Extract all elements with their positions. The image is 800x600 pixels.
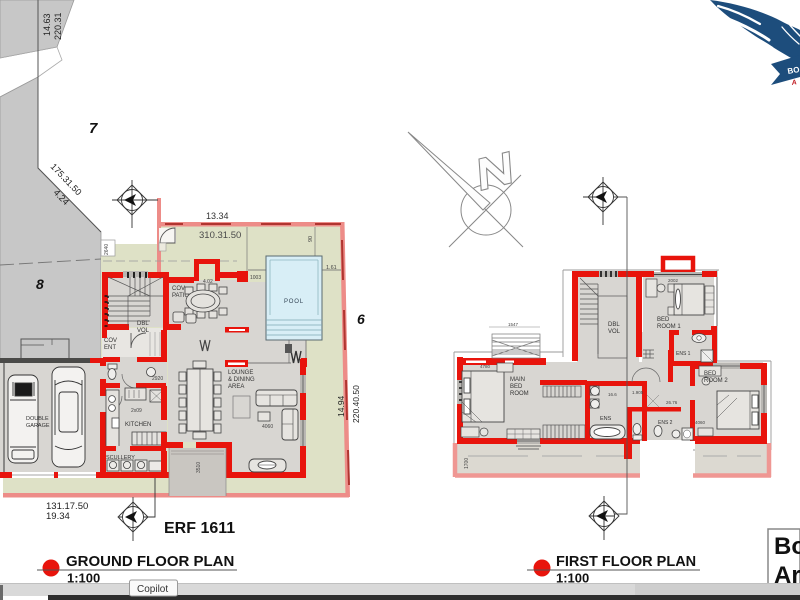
svg-text:16.6: 16.6: [608, 392, 617, 397]
svg-text:220.40.50: 220.40.50: [351, 385, 361, 423]
svg-text:1.61: 1.61: [326, 265, 337, 271]
svg-text:1700: 1700: [464, 458, 470, 469]
svg-text:GARAGE: GARAGE: [26, 423, 50, 429]
svg-text:ENS 1: ENS 1: [676, 351, 691, 357]
svg-text:26.76: 26.76: [666, 400, 678, 405]
svg-text:ERF 1611: ERF 1611: [164, 520, 235, 537]
svg-text:AREA: AREA: [228, 384, 244, 390]
svg-text:& DINING: & DINING: [228, 377, 255, 383]
svg-text:7: 7: [89, 120, 98, 137]
svg-text:3510: 3510: [196, 462, 202, 473]
svg-text:ENT: ENT: [104, 345, 116, 351]
svg-text:KITCHEN: KITCHEN: [125, 422, 151, 428]
svg-text:MAIN: MAIN: [510, 377, 525, 383]
svg-text:GROUND FLOOR PLAN: GROUND FLOOR PLAN: [66, 553, 234, 570]
svg-text:VOL: VOL: [608, 329, 621, 335]
svg-text:8: 8: [36, 276, 44, 292]
svg-text:2x09: 2x09: [131, 408, 142, 414]
svg-text:4060: 4060: [695, 420, 706, 425]
svg-text:LOUNGE: LOUNGE: [228, 370, 253, 376]
svg-text:DOUBLE: DOUBLE: [26, 416, 49, 422]
svg-text:ROOM 2: ROOM 2: [704, 378, 728, 384]
svg-text:2002: 2002: [668, 278, 679, 283]
svg-text:BED: BED: [510, 384, 523, 390]
svg-text:310.31.50: 310.31.50: [199, 230, 241, 241]
svg-text:2640: 2640: [104, 244, 110, 255]
svg-text:ROOM 1: ROOM 1: [657, 324, 681, 330]
svg-text:1.905: 1.905: [632, 390, 644, 395]
svg-text:14.63: 14.63: [42, 13, 52, 36]
svg-text:4780: 4780: [480, 364, 491, 369]
svg-text:BED: BED: [657, 317, 670, 323]
svg-text:DBL: DBL: [608, 322, 620, 328]
svg-text:Copilot: Copilot: [137, 584, 168, 595]
svg-text:ROOM: ROOM: [510, 391, 529, 397]
svg-text:19.34: 19.34: [46, 511, 70, 522]
svg-text:13.34: 13.34: [206, 211, 229, 221]
svg-text:ENS 2: ENS 2: [658, 420, 673, 426]
svg-text:14.94: 14.94: [336, 395, 346, 417]
svg-text:BED: BED: [704, 371, 717, 377]
svg-text:Bo: Bo: [774, 533, 800, 560]
svg-text:4060: 4060: [262, 424, 273, 430]
svg-text:A: A: [790, 79, 797, 87]
svg-text:FIRST FLOOR PLAN: FIRST FLOOR PLAN: [556, 554, 696, 570]
svg-text:COV: COV: [172, 286, 185, 292]
svg-text:6: 6: [357, 311, 365, 327]
svg-text:220.31: 220.31: [53, 12, 63, 40]
svg-text:DBL: DBL: [137, 321, 149, 327]
svg-text:ENS: ENS: [600, 416, 612, 422]
svg-text:POOL: POOL: [284, 299, 304, 305]
svg-text:1547: 1547: [508, 322, 519, 327]
svg-text:COV: COV: [104, 338, 117, 344]
svg-text:90: 90: [308, 236, 314, 242]
svg-text:1003: 1003: [250, 275, 261, 281]
svg-text:2920: 2920: [152, 376, 163, 382]
